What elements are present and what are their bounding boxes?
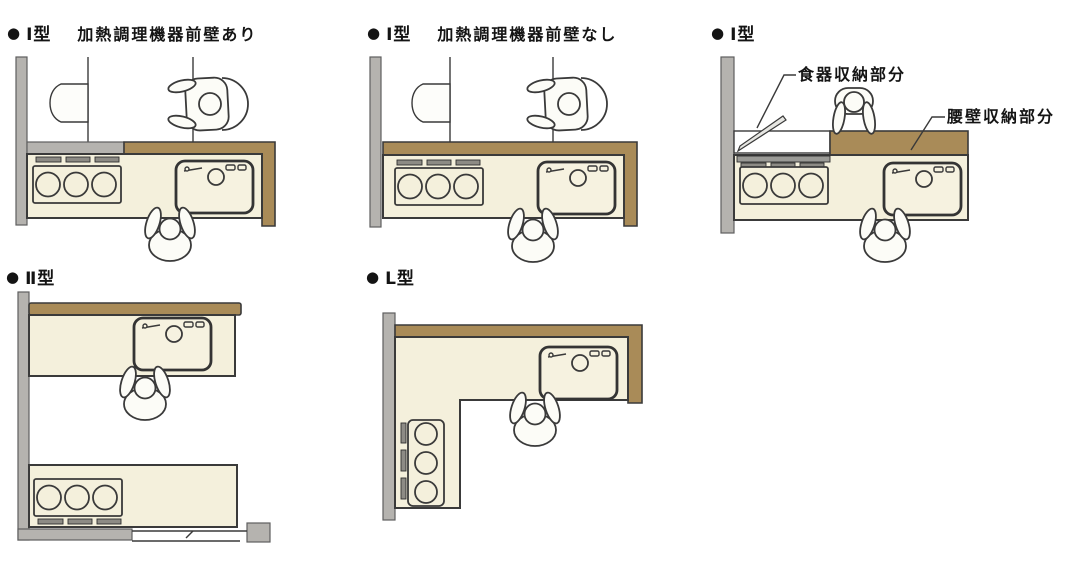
bullet-icon: ● xyxy=(711,24,725,42)
stove xyxy=(33,166,121,203)
kitchen-layout-diagram-sheet: ● Ⅰ型 加熱調理機器前壁あり ● Ⅰ型 加熱調理機器前壁なし ● Ⅰ型 ● Ⅱ… xyxy=(0,0,1080,572)
stove xyxy=(395,168,483,205)
subtitle-label: 加熱調理機器前壁なし xyxy=(437,21,617,45)
wall-left xyxy=(370,57,381,227)
annotation-dish-storage: 食器収納部分 xyxy=(797,65,906,84)
person-leaning xyxy=(831,88,877,135)
wall-left xyxy=(721,57,734,233)
sink xyxy=(884,163,961,215)
diagram-i-type-front-wall xyxy=(0,50,300,255)
stove-vents xyxy=(397,160,480,165)
sink xyxy=(538,162,615,214)
waist-wall-storage-panel xyxy=(830,131,968,155)
bullet-icon: ● xyxy=(7,24,21,42)
front-wall-segment xyxy=(27,142,124,154)
door-swing-tick xyxy=(186,531,193,538)
diagram-l-type xyxy=(360,260,670,572)
stove-vents xyxy=(36,157,119,162)
stove-vents xyxy=(38,519,121,524)
subtitle-label: 加熱調理機器前壁あり xyxy=(77,21,257,45)
type-label: Ⅰ型 xyxy=(386,20,411,45)
wall-left xyxy=(383,313,395,520)
diagram-ii-type xyxy=(0,260,300,572)
counter-back-panel xyxy=(29,303,241,315)
person-seated xyxy=(167,77,248,131)
panel-title-i-front-wall: ● Ⅰ型 加熱調理機器前壁あり xyxy=(7,20,257,45)
counter-back-strip xyxy=(737,156,830,162)
wall-bottom xyxy=(18,529,132,540)
panel-title-i-no-front-wall: ● Ⅰ型 加熱調理機器前壁なし xyxy=(367,20,617,45)
annotation-waist-wall: 腰壁収納部分 xyxy=(947,107,1055,126)
bullet-icon: ● xyxy=(367,24,381,42)
sink xyxy=(540,347,617,399)
type-label: Ⅰ型 xyxy=(730,20,755,45)
stove xyxy=(740,167,828,204)
refrigerator xyxy=(50,84,88,122)
person-seated xyxy=(526,77,607,131)
wall-left xyxy=(18,292,29,540)
diagram-i-type-no-front-wall xyxy=(360,50,660,255)
sink xyxy=(134,318,211,370)
diagram-i-type-annotated: 食器収納部分 腰壁収納部分 xyxy=(700,50,1080,265)
refrigerator xyxy=(412,84,450,122)
stove-vents xyxy=(401,423,406,499)
type-label: Ⅰ型 xyxy=(26,20,51,45)
wall-bottom-stub xyxy=(247,523,270,542)
stove xyxy=(408,420,444,506)
wall-left xyxy=(16,57,27,225)
stove xyxy=(34,479,122,516)
sink xyxy=(176,161,253,213)
panel-title-i-annotated: ● Ⅰ型 xyxy=(711,20,755,45)
